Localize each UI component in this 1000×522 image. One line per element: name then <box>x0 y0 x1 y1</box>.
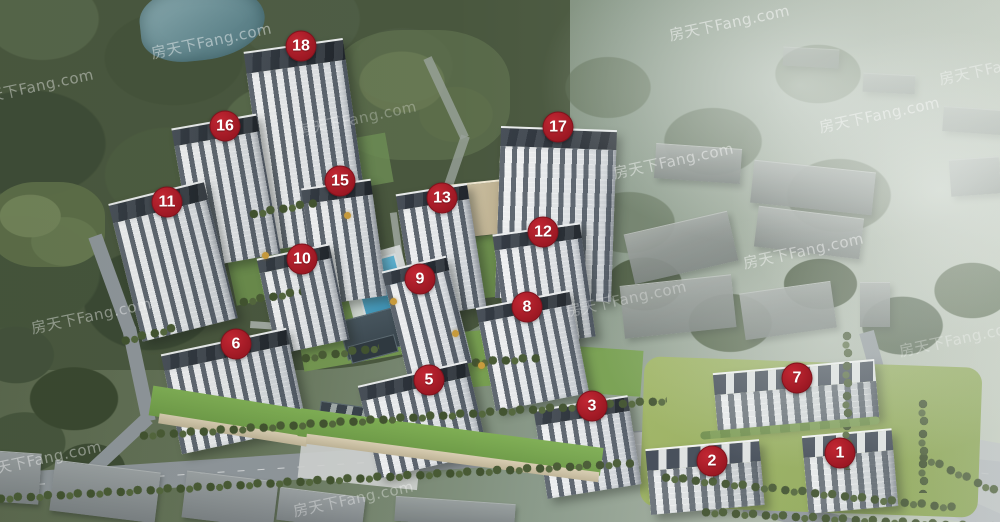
autumn-tree <box>390 298 397 305</box>
building-marker-3[interactable]: 3 <box>577 391 608 422</box>
building-marker-10[interactable]: 10 <box>287 244 318 275</box>
building-marker-2[interactable]: 2 <box>697 446 728 477</box>
building-marker-11[interactable]: 11 <box>152 187 183 218</box>
autumn-tree <box>262 252 269 259</box>
autumn-tree <box>478 362 485 369</box>
background-building <box>942 106 1000 135</box>
background-building <box>863 73 916 95</box>
existing-lowrise <box>394 496 515 522</box>
aerial-site-map: 房天下Fang.com房天下Fang.com房天下Fang.com房天下Fang… <box>0 0 1000 522</box>
meadow <box>0 182 105 267</box>
building-marker-8[interactable]: 8 <box>512 292 543 323</box>
building-marker-5[interactable]: 5 <box>414 365 445 396</box>
background-building <box>860 282 890 327</box>
building-marker-13[interactable]: 13 <box>427 183 458 214</box>
building-marker-6[interactable]: 6 <box>221 329 252 360</box>
roadside-tree-column <box>916 398 931 493</box>
building-marker-7[interactable]: 7 <box>782 363 813 394</box>
autumn-tree <box>344 212 351 219</box>
background-building <box>654 143 742 184</box>
autumn-tree <box>452 330 459 337</box>
building-marker-1[interactable]: 1 <box>825 438 856 469</box>
building-marker-15[interactable]: 15 <box>325 166 356 197</box>
background-building <box>949 156 1000 196</box>
building-marker-18[interactable]: 18 <box>286 31 317 62</box>
building-marker-17[interactable]: 17 <box>543 112 574 143</box>
building-marker-16[interactable]: 16 <box>210 111 241 142</box>
background-building <box>783 47 840 69</box>
existing-lowrise <box>276 487 365 522</box>
building-marker-9[interactable]: 9 <box>405 264 436 295</box>
building-marker-12[interactable]: 12 <box>528 217 559 248</box>
